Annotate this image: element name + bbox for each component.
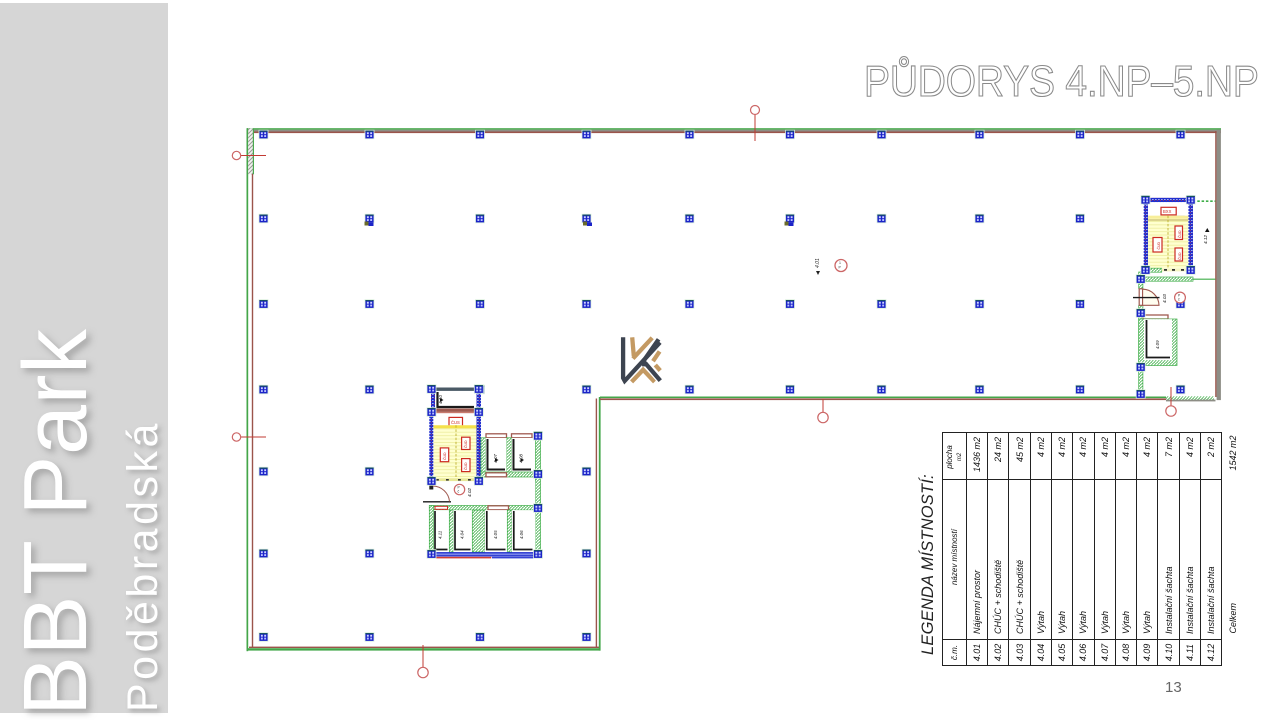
svg-text:ČUD: ČUD	[1177, 230, 1182, 238]
svg-text:ČUD: ČUD	[463, 440, 468, 448]
svg-text:1: 1	[839, 261, 841, 265]
svg-text:ČUD: ČUD	[1177, 252, 1182, 260]
svg-text:4.06: 4.06	[519, 530, 524, 539]
svg-text:4.01: 4.01	[815, 258, 821, 268]
svg-text:č: č	[1178, 298, 1180, 302]
svg-text:4.09: 4.09	[1155, 340, 1160, 349]
svg-text:4.03: 4.03	[1162, 294, 1167, 303]
svg-text:BXX: BXX	[1163, 209, 1172, 214]
svg-text:ČUD: ČUD	[442, 452, 447, 460]
svg-text:ČUD: ČUD	[1156, 241, 1161, 249]
svg-text:č: č	[458, 490, 460, 494]
svg-text:4.04: 4.04	[460, 530, 465, 539]
svg-text:ČUD: ČUD	[463, 462, 468, 470]
svg-text:4.12: 4.12	[1203, 235, 1208, 244]
svg-text:4.02: 4.02	[467, 488, 472, 497]
svg-text:ČUS: ČUS	[451, 420, 460, 425]
svg-text:4.05: 4.05	[493, 530, 498, 539]
svg-text:4.11: 4.11	[438, 530, 443, 539]
